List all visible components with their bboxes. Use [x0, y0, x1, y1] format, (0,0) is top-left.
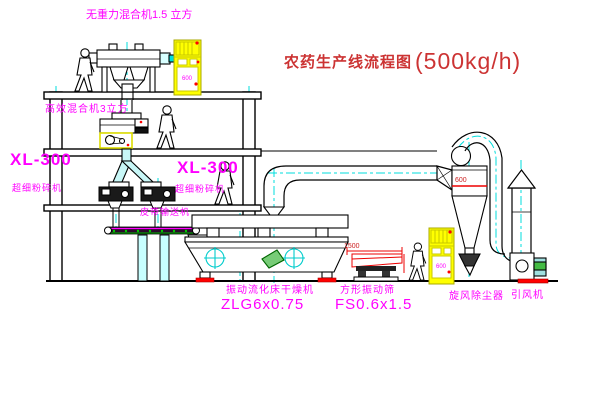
- cyclone-separator: [452, 147, 488, 276]
- title-capacity: (500kg/h): [415, 48, 521, 75]
- label-fan: 引风机: [511, 291, 544, 301]
- label-dryer-model: ZLG6x0.75: [221, 297, 304, 312]
- label-belt-conveyor: 皮带输送机: [140, 208, 190, 217]
- cad-flow-diagram: 无重力混合机1.5 立方 农药生产线流程图 (500kg/h) 高效混合机3立方…: [0, 0, 600, 403]
- dimension-sieve-width: 1500: [344, 243, 360, 250]
- label-sieve-model: FS0.6x1.5: [335, 297, 412, 312]
- page-title: 农药生产线流程图 (500kg/h): [284, 48, 521, 75]
- cabinet-2-text: 600: [436, 264, 446, 270]
- label-dryer-name: 振动流化床干燥机: [226, 286, 314, 296]
- person-level-1: [157, 106, 176, 148]
- title-name: 农药生产线流程图: [284, 51, 412, 72]
- label-mill-left-model: XL-300: [10, 151, 72, 168]
- dimension-cyclone-diameter: 600: [455, 177, 467, 184]
- person-ground: [409, 243, 426, 280]
- label-sieve-name: 方形振动筛: [340, 286, 395, 296]
- label-mill-left-name: 超细粉碎机: [12, 184, 62, 193]
- cabinet-1-text: 600: [182, 76, 192, 82]
- label-mill-mid-name: 超细粉碎机: [175, 185, 225, 194]
- fluid-bed-dryer: [185, 207, 348, 282]
- control-cabinet-1: [174, 40, 201, 95]
- induced-draft-fan: [510, 253, 548, 283]
- label-gravity-mixer: 无重力混合机1.5 立方: [86, 10, 192, 21]
- control-cabinet-2: [429, 228, 454, 284]
- exhaust-duct: [264, 166, 452, 207]
- vibrating-sieve: [347, 247, 404, 281]
- label-mill-mid-model: XL-300: [177, 159, 239, 176]
- label-mixer-3m3: 高效混合机3立方: [45, 105, 129, 115]
- label-cyclone: 旋风除尘器: [449, 292, 504, 302]
